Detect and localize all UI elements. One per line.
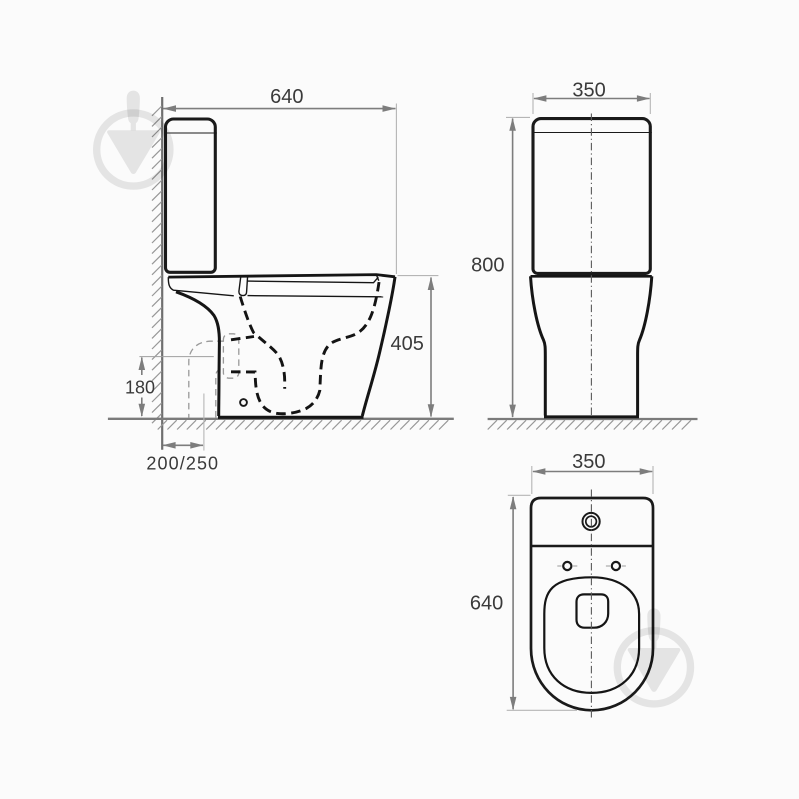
svg-text:800: 800: [471, 254, 504, 276]
svg-text:405: 405: [391, 333, 424, 355]
svg-text:180: 180: [125, 377, 155, 397]
svg-text:350: 350: [572, 79, 605, 101]
svg-text:350: 350: [572, 451, 605, 473]
svg-text:640: 640: [270, 86, 303, 108]
svg-text:200/250: 200/250: [146, 454, 219, 474]
svg-text:640: 640: [470, 593, 503, 615]
